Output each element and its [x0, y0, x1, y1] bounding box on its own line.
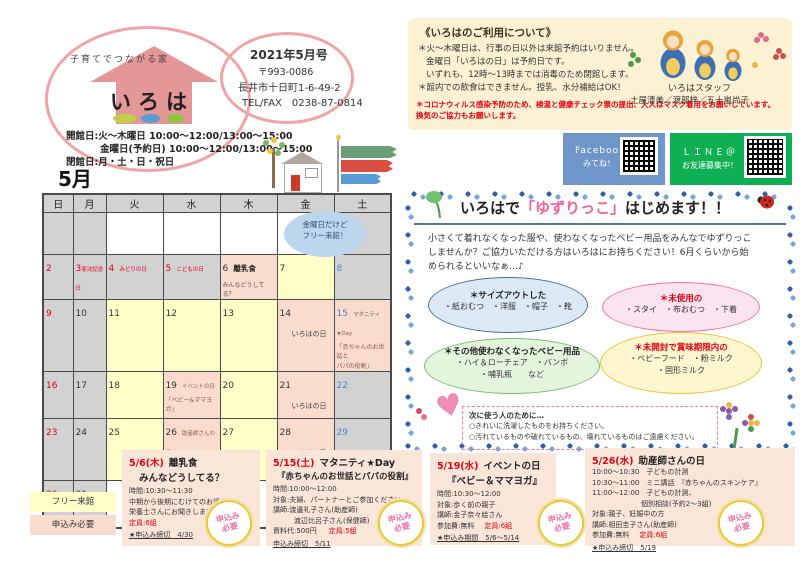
dot-border-left: [400, 202, 416, 438]
calendar-cell-event: 19 イベントの日「ベビー&ママヨガ」: [163, 372, 220, 419]
calendar-cell: 2: [43, 255, 73, 300]
calendar-cell: [163, 213, 220, 255]
calendar-cell: 7: [277, 255, 334, 300]
calendar-cell: [220, 213, 277, 255]
small-flowers-left-icon: [416, 408, 422, 414]
ladybug-icon: [756, 194, 774, 210]
staff-doll-small-icon: [722, 47, 744, 81]
calendar-cell-event: 15 マタニティ★Day「赤ちゃんのお世話とパパの役割」: [334, 300, 391, 372]
staff-names: 土屋清美／渡部梓／五十嵐尚子: [630, 94, 749, 106]
tagline: 子育てでつながる家: [70, 52, 169, 65]
logo-blob-lime: [167, 114, 184, 123]
oval-unused: ＊未使用の ・スタイ ・布おむつ ・下着: [602, 282, 760, 332]
sprout-icon: [424, 190, 456, 218]
legend-reservation-needed: 申込み必要: [30, 515, 116, 535]
calendar-cell: [43, 213, 73, 255]
postal-code: 〒993-0086: [258, 64, 313, 78]
calendar-cell: 17: [73, 372, 106, 419]
logo-title: いろは: [110, 86, 194, 116]
usage-line-2: 金曜日「いろはの日」は予約日です。: [426, 55, 570, 67]
usage-title: 《いろはのご利用について》: [420, 25, 556, 40]
oval-sized-out: ＊サイズアウトした ・紙おむつ ・洋服 ・帽子 ・靴: [428, 277, 588, 333]
house-door-icon: [291, 175, 300, 191]
bubble-tail: [308, 245, 320, 255]
calendar-cell: 12: [163, 300, 220, 372]
title-underline: [414, 223, 786, 225]
event-box-midwife-day: 5/26(水)助産師さんの日 10:00～10:30 子どもの計測 10:30～…: [585, 448, 795, 546]
weekday-header-mon: 月: [73, 194, 106, 213]
calendar-cell: 4 みどりの日: [106, 255, 163, 300]
calendar-cell: 13: [220, 300, 277, 372]
staff-doll-medium-icon: [692, 38, 718, 80]
oval-other-baby-goods: ＊その他使わなくなったベビー用品 ・ハイ＆ローチェア ・バンボ ・哺乳瓶 など: [424, 338, 600, 394]
month-title: 5月: [58, 163, 92, 192]
clover-icon: [630, 52, 636, 58]
calendar-cell: 10: [73, 300, 106, 372]
usage-line-4: ＊館内での飲食はできません。授乳、水分補給はOK！: [418, 81, 626, 93]
weekday-header-thu: 木: [220, 194, 277, 213]
staff-doll-large-icon: [658, 28, 688, 78]
flower-pink-icon: [758, 32, 764, 38]
facebook-qr-code: [620, 137, 658, 175]
legend-free-visit: フリー来館: [30, 492, 116, 512]
koinobori-pole-icon: [337, 140, 339, 192]
flower-yellow-icon: [752, 62, 758, 68]
calendar-cell: 3憲法記念日: [73, 255, 106, 300]
calendar-cell: 24: [73, 419, 106, 481]
flower-red-icon: [776, 48, 782, 54]
dot-border-right: [782, 202, 798, 438]
covid-warning-2: 換気のご協力もお願いします。: [416, 110, 520, 121]
newsletter-page: 子育てでつながる家 いろは 2021年5月号 〒993-0086 長井市十日町1…: [0, 0, 800, 565]
notice-box: 次に使う人のために… ○きれいに洗濯したものをお持ちください。 ○汚れているもの…: [462, 406, 718, 450]
calendar-cell: 8: [334, 255, 391, 300]
calendar-cell: 20: [220, 372, 277, 419]
calendar-cell: [106, 213, 163, 255]
yuzurikko-body: 小さくて着れなくなった服や、使わなくなったベビー用品をみんなでゆずりっこしません…: [428, 232, 751, 274]
calendar-cell: 5 こどもの日: [163, 255, 220, 300]
koinobori-carp-red-icon: [341, 160, 393, 172]
calendar-cell: 16: [43, 372, 73, 419]
event-box-event-day: 5/19(水)イベントの日 『ベビー＆ママヨガ』 時間:10:30～12:00 …: [430, 453, 556, 545]
calendar-cell: 22: [334, 372, 391, 419]
friday-free-bubble: 金曜日だけどフリー来館！: [284, 211, 366, 257]
pansy-flower-2-icon: [748, 420, 754, 426]
weekday-header-sun: 日: [43, 194, 73, 213]
tree-foliage-icon: [263, 140, 269, 146]
house-window-icon: [305, 168, 318, 178]
yuzurikko-title: いろはで「ゆずりっこ」はじめます！！: [460, 197, 730, 218]
calendar-cell-event: 6 離乳食みんなどうしてる？: [220, 255, 277, 300]
weekday-header-fri: 金: [277, 194, 334, 213]
tree-icon: [272, 148, 275, 188]
calendar-cell: 18: [106, 372, 163, 419]
weekday-header-wed: 水: [163, 194, 220, 213]
calendar-cell: 9: [43, 300, 73, 372]
koinobori-carp-green-icon: [341, 146, 397, 158]
open-hours-1: 開館日:火～木曜日 10:00～12:00/13:00～15:00: [66, 128, 293, 142]
weekday-header-sat: 土: [334, 194, 391, 213]
oval-unopened-food: ＊未開封で賞味期限内の ・ベビーフード ・粉ミルク ・固形ミルク: [600, 332, 762, 394]
address: 長井市十日町1-6-49-2: [238, 79, 341, 94]
telfax: TEL/FAX 0238-87-0814: [242, 94, 363, 109]
calendar-cell-event: 21いろはの日: [277, 372, 334, 419]
pansy-flower-icon: [726, 408, 732, 414]
weekday-header-tue: 火: [106, 194, 163, 213]
usage-line-3: いずれも、12時～13時までは消毒のため閉館します。: [426, 68, 634, 80]
calendar-cell: 11: [106, 300, 163, 372]
calendar-cell: [73, 213, 106, 255]
staff-label: いろはスタッフ: [668, 81, 731, 94]
house-roof-icon: [281, 152, 323, 164]
calendar-cell-event: 14いろはの日: [277, 300, 334, 372]
logo-blob-blue: [141, 114, 160, 123]
line-qr-code: [744, 136, 786, 178]
calendar-cell: 23: [43, 419, 73, 481]
koinobori-top-icon: [336, 135, 341, 140]
logo-blob-green: [113, 114, 137, 123]
usage-line-1: ＊火～木曜日は、行事の日以外は来館予約はいりません。: [418, 42, 639, 54]
calendar-header-row: 日 月 火 水 木 金 土: [43, 194, 391, 213]
issue-title: 2021年5月号: [250, 46, 328, 63]
koinobori-carp-blue-icon: [341, 174, 381, 184]
